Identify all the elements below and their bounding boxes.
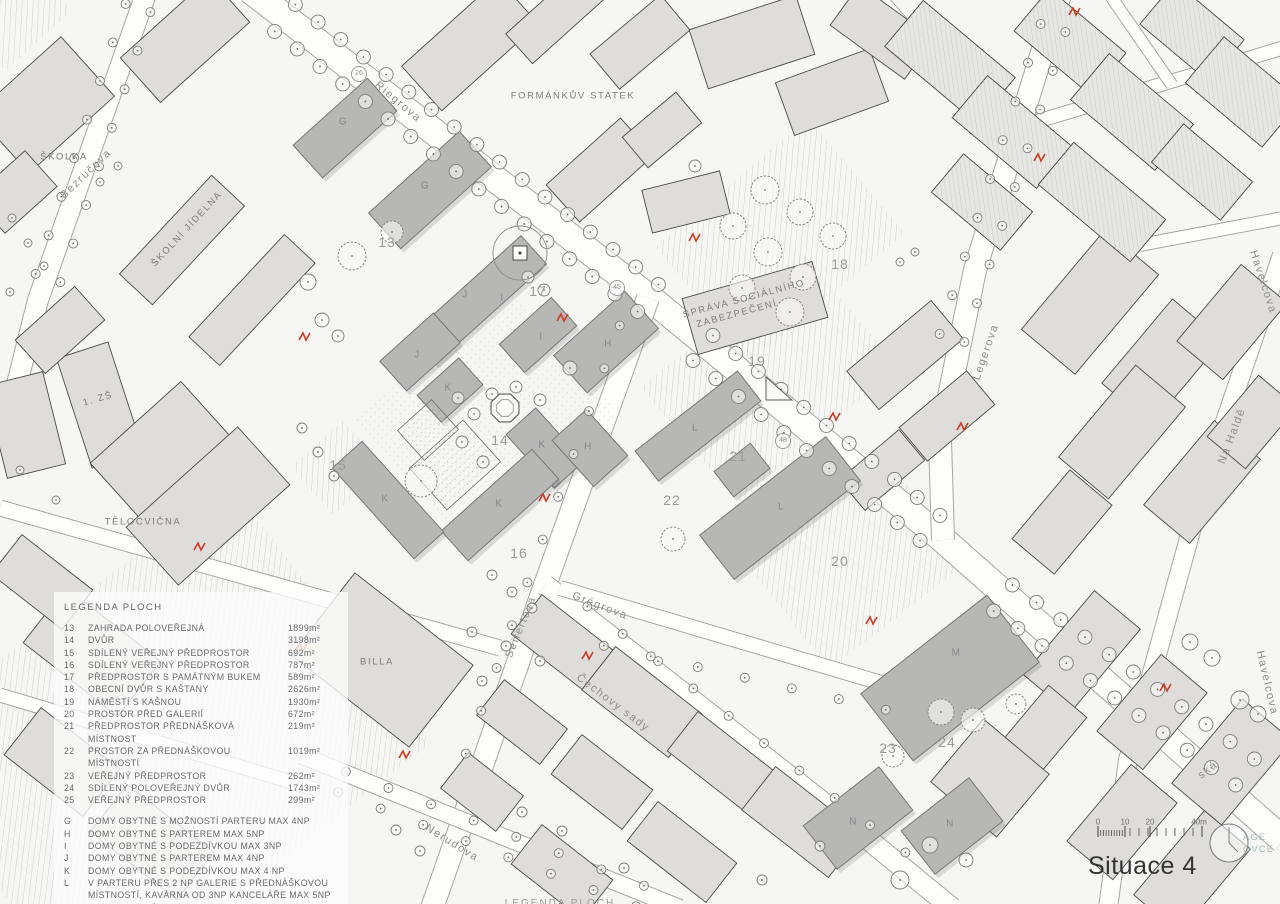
building-letter: L [692, 423, 698, 434]
place-label: FORMÁNKŮV STATEK [511, 91, 635, 102]
building-letter: N [946, 819, 954, 830]
site-plan-canvas: RiegrovaBezručovaSeifertovaGrégrovaČecho… [0, 0, 1280, 904]
legend-area-value: 672m² [288, 708, 338, 720]
legend-area-num: 21 [64, 720, 88, 745]
building-letter: N [849, 817, 857, 828]
area-number: 14 [491, 432, 509, 448]
area-number: 18 [831, 256, 849, 272]
legend-area-row: 13 ZAHRADA POLOVEŘEJNÁ 1899m² [64, 622, 338, 634]
building-letter: K [444, 383, 451, 394]
legend-building-row: H DOMY OBYTNÉ S PARTEREM MAX 5NP [64, 828, 338, 840]
legend-area-value: 1743m² [288, 782, 338, 794]
area-number: 15 [329, 457, 347, 473]
legend-building-code: L [64, 877, 88, 902]
legend-area-num: 19 [64, 696, 88, 708]
building-letter: K [495, 499, 502, 510]
legend-building-code: J [64, 852, 88, 864]
building-letter: M [952, 648, 961, 659]
title-block: 0 10 20 40m Situace 4 AGE OVCE [1073, 820, 1280, 904]
legend-building-row: L V PARTERU PŘES 2 NP GALERIE S PŘEDNÁŠK… [64, 877, 338, 902]
building-letter: H [584, 442, 592, 453]
legend-building-label: DOMY OBYTNÉ S PODEZDÍVKOU MAX 4 NP [88, 865, 338, 877]
legend-building-label: DOMY OBYTNÉ S PARTEREM MAX 4NP [88, 852, 338, 864]
area-number: 21 [729, 448, 747, 464]
legend-area-label: ZAHRADA POLOVEŘEJNÁ [88, 622, 288, 634]
area-number: 16 [510, 545, 528, 561]
building-letter: G [339, 117, 347, 128]
legend-area-row: 25 VEŘEJNÝ PŘEDPROSTOR 299m² [64, 794, 338, 806]
legend-area-row: 22 PROSTOR ZA PŘEDNÁŠKOVOU MÍSTNOSTÍ 101… [64, 745, 338, 770]
legend-area-label: VEŘEJNÝ PŘEDPROSTOR [88, 770, 288, 782]
legend-area-row: 15 SDÍLENÝ VEŘEJNÝ PŘEDPROSTOR 692m² [64, 647, 338, 659]
legend-area-row: 16 SDÍLENÝ VEŘEJNÝ PŘEDPROSTOR 787m² [64, 659, 338, 671]
legend-area-label: PŘEDPROSTOR PŘEDNÁŠKOVÁ MÍSTNOST [88, 720, 288, 745]
legend-area-num: 22 [64, 745, 88, 770]
building-letter: I [539, 332, 542, 343]
legend-area-row: 24 SDÍLENÝ POLOVEŘEJNÝ DVŮR 1743m² [64, 782, 338, 794]
legend-building-row: J DOMY OBYTNÉ S PARTEREM MAX 4NP [64, 852, 338, 864]
parking-count-badge: 45 [609, 280, 625, 296]
scale-tick-20: 20 [1146, 818, 1155, 827]
building-letter: J [462, 290, 468, 301]
legend-area-label: PŘEDPROSTOR S PAMÁTNÝM BUKEM [88, 671, 288, 683]
legend-area-value: 1899m² [288, 622, 338, 634]
clipped-legend-title: LEGENDA PLOCH [505, 898, 615, 904]
legend-building-row: K DOMY OBYTNÉ S PODEZDÍVKOU MAX 4 NP [64, 865, 338, 877]
legend-building-label: V PARTERU PŘES 2 NP GALERIE S PŘEDNÁŠKOV… [88, 877, 338, 902]
building-letter: K [381, 494, 388, 505]
legend-building-label: DOMY OBYTNÉ S PODEZDÍVKOU MAX 3NP [88, 840, 338, 852]
legend-area-label: PROSTOR ZA PŘEDNÁŠKOVOU MÍSTNOSTÍ [88, 745, 288, 770]
legend-area-num: 16 [64, 659, 88, 671]
legend-area-value: 1930m² [288, 696, 338, 708]
legend-building-label: DOMY OBYTNÉ S PARTEREM MAX 5NP [88, 828, 338, 840]
scale-tick-40m: 40m [1191, 818, 1207, 827]
legend-area-num: 13 [64, 622, 88, 634]
building-letter: L [778, 502, 784, 513]
place-label: ŠKOLKA [40, 152, 88, 163]
legend-area-value: 3198m² [288, 634, 338, 646]
legend-building-code: H [64, 828, 88, 840]
area-number: 13 [378, 234, 396, 250]
legend-area-num: 20 [64, 708, 88, 720]
legend-area-value: 787m² [288, 659, 338, 671]
legend-area-value: 262m² [288, 770, 338, 782]
area-number: 19 [748, 353, 766, 369]
legend-area-value: 2626m² [288, 683, 338, 695]
legend-area-label: VEŘEJNÝ PŘEDPROSTOR [88, 794, 288, 806]
area-number: 17 [529, 283, 547, 299]
drawing-title: Situace 4 [1088, 852, 1197, 881]
legend-area-label: SDÍLENÝ VEŘEJNÝ PŘEDPROSTOR [88, 647, 288, 659]
legend-area-label: SDÍLENÝ POLOVEŘEJNÝ DVŮR [88, 782, 288, 794]
legend-building-row: G DOMY OBYTNÉ S MOŽNOSTÍ PARTERU MAX 4NP [64, 815, 338, 827]
parking-count-badge: 26 [351, 66, 367, 82]
legend-area-num: 18 [64, 683, 88, 695]
legend-area-num: 17 [64, 671, 88, 683]
legend-building-code: I [64, 840, 88, 852]
building-letter: I [500, 293, 503, 304]
legend-building-label: DOMY OBYTNÉ S MOŽNOSTÍ PARTERU MAX 4NP [88, 815, 338, 827]
legend-area-num: 24 [64, 782, 88, 794]
area-number: 23 [879, 740, 897, 756]
legend-building-row: I DOMY OBYTNÉ S PODEZDÍVKOU MAX 3NP [64, 840, 338, 852]
building-letter: J [414, 350, 420, 361]
legend-area-num: 14 [64, 634, 88, 646]
legend-area-value: 219m² [288, 720, 338, 745]
legend-area-value: 589m² [288, 671, 338, 683]
legend-area-num: 15 [64, 647, 88, 659]
stamp-text: AGE OVCE [1243, 832, 1274, 856]
legend-area-label: SDÍLENÝ VEŘEJNÝ PŘEDPROSTOR [88, 659, 288, 671]
legend-building-code: K [64, 865, 88, 877]
legend-area-label: PROSTOR PŘED GALERIÍ [88, 708, 288, 720]
legend-building-type-list: G DOMY OBYTNÉ S MOŽNOSTÍ PARTERU MAX 4NP… [64, 815, 338, 904]
legend-building-code: G [64, 815, 88, 827]
legend-area-num: 23 [64, 770, 88, 782]
legend-area-list: 13 ZAHRADA POLOVEŘEJNÁ 1899m² 14 DVŮR 31… [64, 622, 338, 806]
parking-count-badge: 48 [775, 433, 791, 449]
legend-box: LEGENDA PLOCH 13 ZAHRADA POLOVEŘEJNÁ 189… [54, 592, 348, 904]
place-label: TĚLOCVIČNA [105, 517, 182, 528]
legend-area-num: 25 [64, 794, 88, 806]
legend-title: LEGENDA PLOCH [64, 602, 338, 613]
legend-area-value: 299m² [288, 794, 338, 806]
legend-area-value: 692m² [288, 647, 338, 659]
legend-area-label: OBECNÍ DVŮR S KAŠTANY [88, 683, 288, 695]
area-number: 20 [831, 553, 849, 569]
legend-area-row: 17 PŘEDPROSTOR S PAMÁTNÝM BUKEM 589m² [64, 671, 338, 683]
legend-area-row: 23 VEŘEJNÝ PŘEDPROSTOR 262m² [64, 770, 338, 782]
legend-area-row: 18 OBECNÍ DVŮR S KAŠTANY 2626m² [64, 683, 338, 695]
building-letter: H [604, 339, 612, 350]
legend-area-row: 19 NÁMĚSTÍ S KAŠNOU 1930m² [64, 696, 338, 708]
legend-area-value: 1019m² [288, 745, 338, 770]
scale-tick-10: 10 [1121, 818, 1130, 827]
scale-tick-0: 0 [1096, 818, 1100, 827]
area-number: 22 [663, 492, 681, 508]
building-letter: K [538, 440, 545, 451]
legend-area-row: 21 PŘEDPROSTOR PŘEDNÁŠKOVÁ MÍSTNOST 219m… [64, 720, 338, 745]
legend-area-label: DVŮR [88, 634, 288, 646]
place-label: BILLA [360, 657, 394, 668]
legend-area-label: NÁMĚSTÍ S KAŠNOU [88, 696, 288, 708]
building-letter: G [421, 181, 429, 192]
stamp-line-2: OVCE [1243, 844, 1274, 856]
area-number: 24 [938, 734, 956, 750]
stamp-line-1: AGE [1243, 832, 1274, 844]
legend-area-row: 20 PROSTOR PŘED GALERIÍ 672m² [64, 708, 338, 720]
legend-area-row: 14 DVŮR 3198m² [64, 634, 338, 646]
